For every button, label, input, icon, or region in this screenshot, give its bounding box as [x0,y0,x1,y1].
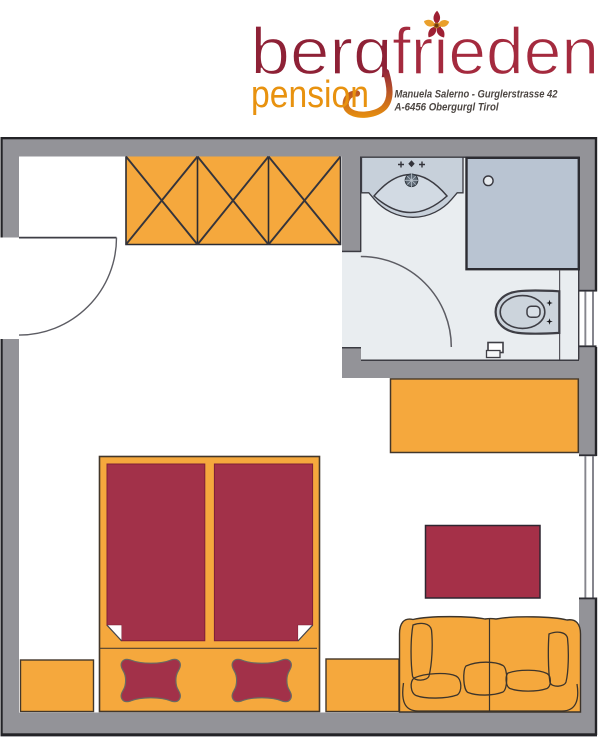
svg-text:frieden: frieden [392,14,599,88]
svg-text:Manuela Salerno - Gurglerstras: Manuela Salerno - Gurglerstrasse 42 [395,89,558,101]
svg-text:pension: pension [251,74,369,116]
svg-text:A-6456 Obergurgl Tirol: A-6456 Obergurgl Tirol [394,102,500,114]
